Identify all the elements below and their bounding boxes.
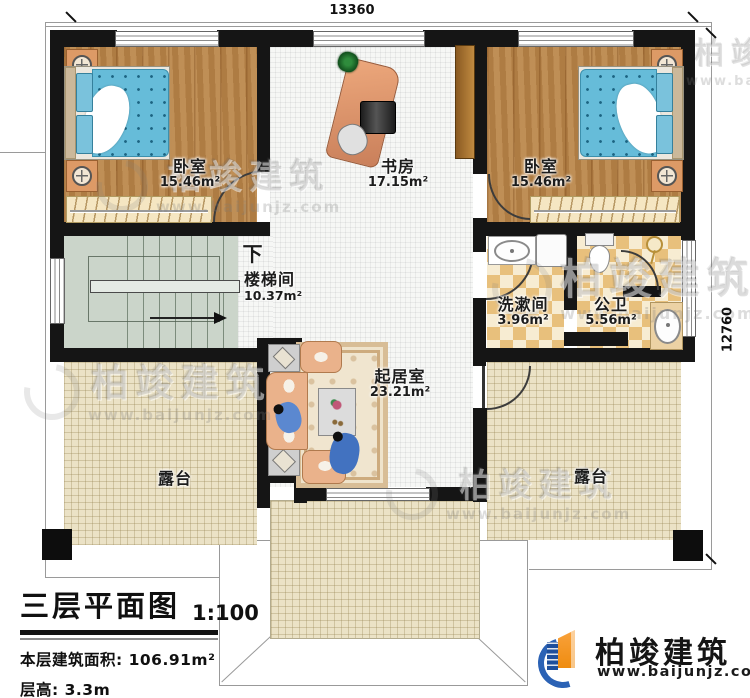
stairs-direction-arrow: [214, 312, 227, 324]
floor-area-label: 本层建筑面积:: [20, 651, 123, 669]
dimension-tick: [687, 11, 698, 22]
down-direction-label: 下: [236, 243, 270, 266]
wall-segment: [426, 487, 487, 501]
window: [50, 258, 65, 324]
column: [673, 530, 703, 561]
eave-line: [711, 22, 712, 570]
title-underline: [20, 630, 218, 635]
wall-segment: [257, 482, 270, 508]
room-label-terrace-right: 露台: [556, 468, 626, 486]
wall-segment: [50, 222, 270, 236]
nightstand-symbol: [66, 160, 98, 192]
coffee-table-symbol: [318, 388, 356, 436]
terrace-bottom-floor: [270, 500, 480, 639]
wall-segment: [50, 348, 272, 362]
eave-line: [45, 22, 46, 578]
watermark-url: www.baijunjz.com: [686, 74, 750, 89]
dimension-right: 12760: [721, 298, 736, 362]
room-label-terrace-left: 露台: [140, 470, 210, 488]
extension-line: [0, 152, 45, 153]
wall-segment: [473, 348, 695, 362]
window: [682, 240, 696, 337]
eave-line: [45, 26, 712, 27]
watermark: 柏竣建筑 www.baijunjz.com: [686, 40, 750, 89]
window: [326, 488, 430, 501]
floor-height-label: 层高:: [20, 681, 59, 698]
terrace-left-floor: [64, 362, 257, 545]
floor-area-value: 106.91m²: [129, 651, 216, 669]
window: [115, 31, 219, 47]
window: [518, 31, 634, 47]
column: [42, 529, 72, 560]
eave-line: [45, 22, 712, 23]
room-label-bedroom-right: 卧室 15.46m²: [496, 158, 586, 191]
side-table-symbol: [268, 344, 300, 372]
wall-segment: [473, 222, 695, 236]
wall-segment: [294, 487, 328, 501]
watermark-text: 柏竣建筑: [694, 40, 750, 70]
wall-segment: [564, 332, 628, 346]
bed-symbol: [64, 66, 170, 160]
room-label-living-room: 起居室 23.21m²: [355, 368, 445, 401]
stairs-rail: [90, 280, 240, 293]
side-table-symbol: [268, 446, 300, 476]
wall-segment: [473, 30, 487, 174]
bed-symbol: [578, 66, 684, 160]
plan-scale: 1:100: [192, 601, 259, 625]
floor-height-value: 3.3m: [65, 681, 111, 698]
armchair-symbol: [300, 341, 342, 373]
room-label-washroom: 洗漱间 3.96m²: [484, 296, 562, 329]
wardrobe-symbol: [66, 196, 212, 223]
eave-line: [529, 569, 712, 570]
wardrobe-symbol: [530, 196, 680, 223]
wall-segment: [473, 236, 486, 252]
computer-monitor-symbol: [360, 101, 396, 134]
door-leaf: [482, 366, 485, 408]
stairs-direction-line: [150, 317, 216, 319]
title-block: 三层平面图 1:100 本层建筑面积: 106.91m² 层高: 3.3m: [20, 583, 260, 698]
room-label-toilet: 公卫 5.56m²: [572, 296, 650, 329]
room-label-study: 书房 17.15m²: [353, 158, 443, 191]
dimension-top: 13360: [302, 3, 402, 18]
cabinet-symbol: [455, 45, 475, 159]
sink-symbol: [654, 309, 681, 344]
nightstand-symbol: [651, 160, 683, 192]
floor-plan-canvas: 柏竣建筑 www.baijunjz.com 柏竣建筑 www.baijunjz.…: [0, 0, 750, 698]
washing-machine-symbol: [536, 234, 567, 267]
plan-title: 三层平面图: [20, 583, 180, 625]
brand-logo: 柏竣建筑 www.baijunjz.com: [538, 622, 743, 692]
dimension-tick: [65, 11, 76, 22]
brand-logo-icon: [538, 626, 590, 686]
room-label-stairwell: 楼梯间 10.37m²: [244, 271, 314, 304]
window: [313, 31, 425, 47]
room-label-bedroom-left: 卧室 15.46m²: [145, 158, 235, 191]
title-underline-thin: [20, 638, 218, 640]
sink-symbol: [494, 240, 530, 262]
brand-url: www.baijunjz.com: [597, 664, 750, 680]
wall-segment: [257, 30, 270, 172]
